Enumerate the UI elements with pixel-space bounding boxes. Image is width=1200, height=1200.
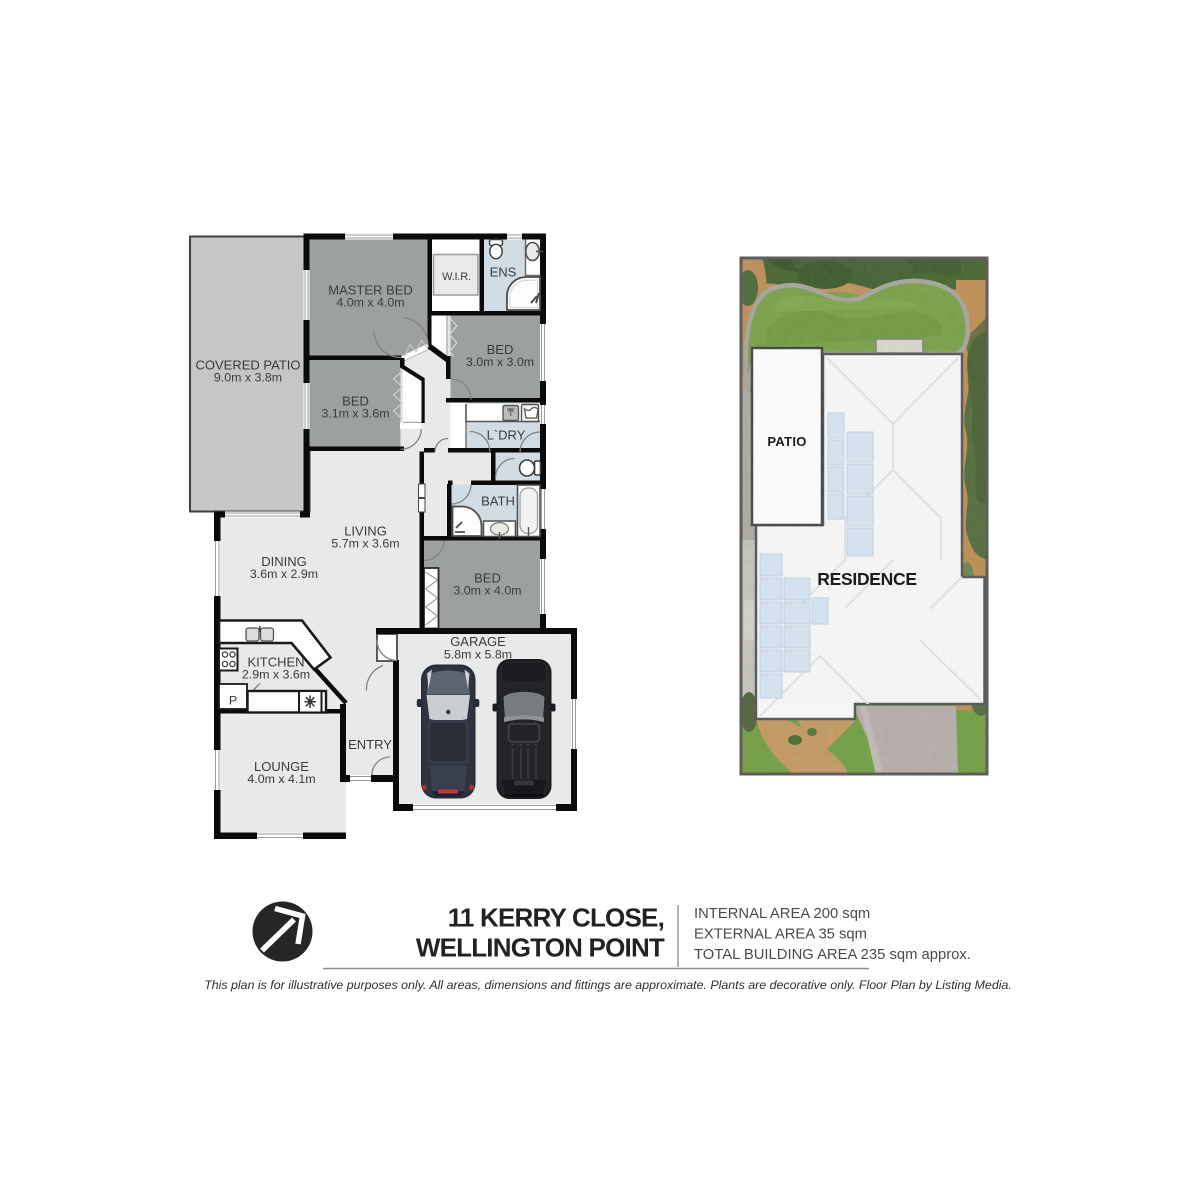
svg-text:3.0m x 4.0m: 3.0m x 4.0m xyxy=(453,584,521,598)
svg-text:4.0m x 4.0m: 4.0m x 4.0m xyxy=(336,296,404,310)
svg-text:3.6m x 2.9m: 3.6m x 2.9m xyxy=(250,567,318,581)
svg-text:EXTERNAL AREA 35 sqm: EXTERNAL AREA 35 sqm xyxy=(694,927,867,943)
svg-text:ENTRY: ENTRY xyxy=(348,737,392,752)
svg-text:PATIO: PATIO xyxy=(767,434,806,449)
svg-text:11 KERRY CLOSE,: 11 KERRY CLOSE, xyxy=(448,903,664,933)
svg-text:This plan is for illustrative: This plan is for illustrative purposes o… xyxy=(204,978,1012,992)
svg-text:WELLINGTON POINT: WELLINGTON POINT xyxy=(416,933,665,963)
svg-text:INTERNAL AREA 200 sqm: INTERNAL AREA 200 sqm xyxy=(694,906,870,922)
svg-text:3.0m x 3.0m: 3.0m x 3.0m xyxy=(466,355,534,369)
svg-text:5.7m x 3.6m: 5.7m x 3.6m xyxy=(331,537,399,551)
svg-text:BATH: BATH xyxy=(481,494,515,509)
svg-text:2.9m x 3.6m: 2.9m x 3.6m xyxy=(242,668,310,682)
svg-text:RESIDENCE: RESIDENCE xyxy=(817,569,916,589)
svg-text:4.0m x 4.1m: 4.0m x 4.1m xyxy=(247,772,315,786)
svg-text:P: P xyxy=(229,694,237,708)
svg-text:ENS: ENS xyxy=(490,265,517,280)
svg-text:3.1m x 3.6m: 3.1m x 3.6m xyxy=(321,407,389,421)
svg-text:TOTAL BUILDING AREA 235 sqm ap: TOTAL BUILDING AREA 235 sqm approx. xyxy=(694,947,971,963)
svg-text:L`DRY: L`DRY xyxy=(487,428,526,443)
svg-text:9.0m x 3.8m: 9.0m x 3.8m xyxy=(214,371,282,385)
svg-text:W.I.R.: W.I.R. xyxy=(442,271,471,283)
svg-text:5.8m x 5.8m: 5.8m x 5.8m xyxy=(444,648,512,662)
